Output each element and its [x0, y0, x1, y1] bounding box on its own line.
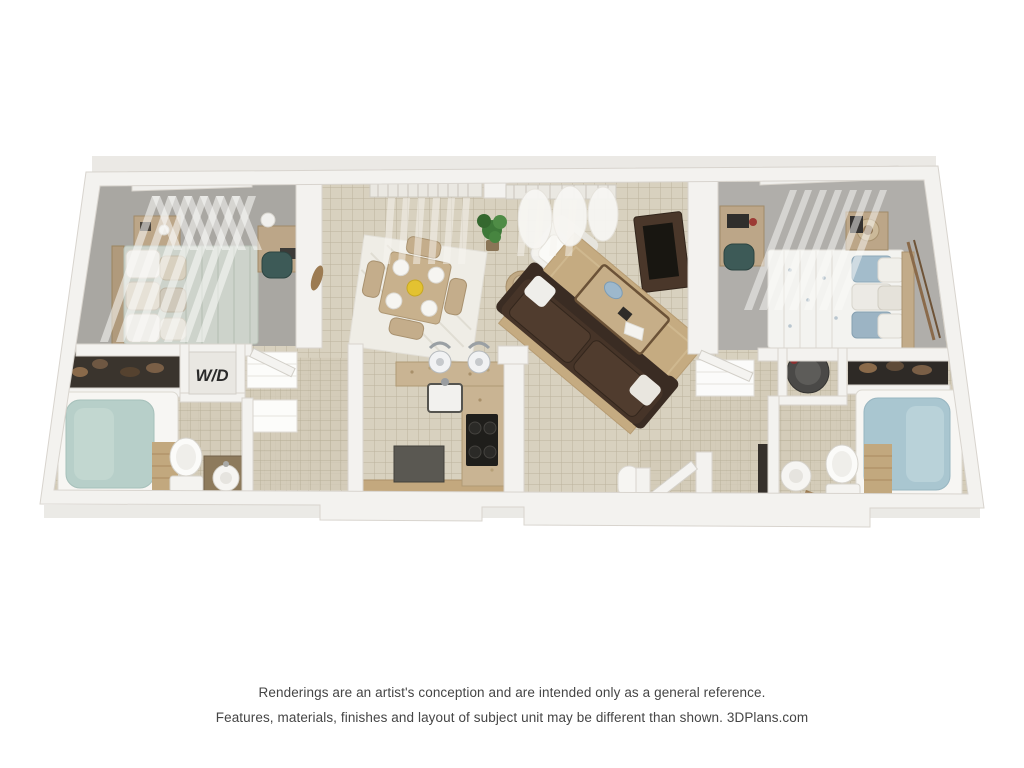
curtain-icon [588, 187, 618, 241]
kitchen-sink-icon [428, 384, 462, 412]
monitor-icon [727, 214, 749, 228]
stove-icon [466, 414, 498, 466]
disclaimer-line-1: Renderings are an artist's conception an… [0, 680, 1024, 705]
desk-lamp-icon [261, 213, 275, 227]
media-console-icon [634, 211, 691, 292]
window-center-left [370, 183, 482, 197]
toilet-left-icon [170, 438, 203, 492]
refrigerator-icon [394, 446, 444, 482]
faucet-icon [441, 378, 449, 386]
washer-dryer-label: W/D [195, 366, 228, 385]
desk-chair-left [262, 252, 292, 278]
tub-steps-icon [864, 444, 892, 494]
desk-chair-right [724, 244, 754, 270]
toilet-right-icon [826, 445, 860, 500]
floorplan-rendering: W/D [0, 0, 1024, 768]
floorplan-page: W/D Renderings are an art [0, 0, 1024, 768]
disclaimer-caption: Renderings are an artist's conception an… [0, 680, 1024, 730]
disclaimer-line-2: Features, materials, finishes and layout… [0, 705, 1024, 730]
mug-icon [749, 218, 757, 226]
